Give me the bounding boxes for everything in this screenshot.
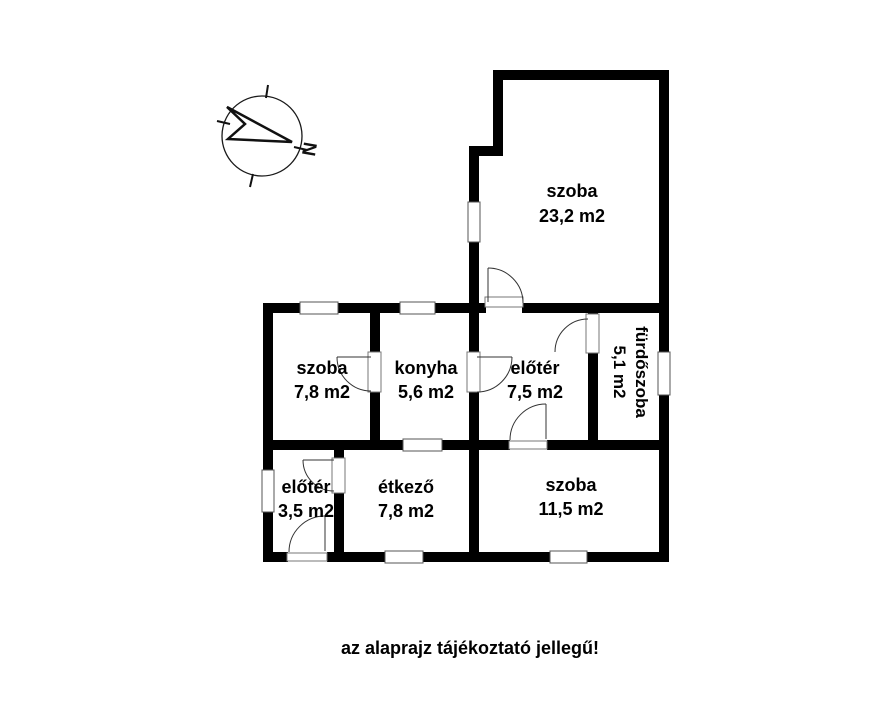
door-panel-eloter-etkezo bbox=[332, 458, 345, 493]
room-area-szoba-bottom: 11,5 m2 bbox=[538, 499, 603, 519]
window-etkezo-bottom bbox=[385, 551, 423, 563]
room-area-szoba-large: 23,2 m2 bbox=[539, 206, 605, 226]
room-name-szoba-bottom: szoba bbox=[545, 475, 597, 495]
door-panel-konyha-eloter bbox=[467, 352, 480, 392]
window-szoba-bottom bbox=[550, 551, 587, 563]
wall-outer-right bbox=[659, 70, 669, 562]
disclaimer-caption: az alaprajz tájékoztató jellegű! bbox=[341, 638, 599, 658]
room-area-szoba-small: 7,8 m2 bbox=[294, 382, 350, 402]
floor-plan-page: N szoba 23,2 m2 szoba 7,8 m2 konyha 5,6 … bbox=[0, 0, 887, 702]
room-area-konyha: 5,6 m2 bbox=[398, 382, 454, 402]
room-name-eloter-lower: előtér bbox=[281, 477, 330, 497]
door-panel-furdoszoba bbox=[586, 314, 599, 353]
door-arc-entrance bbox=[289, 516, 325, 552]
north-label: N bbox=[297, 140, 320, 157]
compass: N bbox=[217, 85, 320, 187]
room-area-eloter-lower: 3,5 m2 bbox=[278, 501, 334, 521]
window-bigroom-left bbox=[468, 202, 480, 242]
room-name-furdoszoba: fürdőszoba bbox=[632, 326, 651, 418]
room-area-furdoszoba: 5,1 m2 bbox=[610, 346, 629, 399]
window-konyha-top bbox=[400, 302, 435, 314]
door-arc-eloter-szoba bbox=[510, 404, 546, 440]
wall-bigroom-left-upper bbox=[493, 70, 503, 156]
room-name-szoba-small: szoba bbox=[296, 358, 348, 378]
window-szoba-small-top bbox=[300, 302, 338, 314]
room-name-konyha: konyha bbox=[394, 358, 458, 378]
room-name-etkezo: étkező bbox=[378, 477, 434, 497]
room-area-etkezo: 7,8 m2 bbox=[378, 501, 434, 521]
wall-etkezo-szoba bbox=[469, 440, 479, 562]
door-panel-eloter-szoba bbox=[509, 441, 547, 449]
wall-bigroom-top bbox=[493, 70, 669, 80]
wall-middle-bottom bbox=[263, 440, 669, 450]
door-panel-bigroom bbox=[485, 297, 523, 307]
door-panel-entrance bbox=[287, 553, 327, 561]
north-arrow-icon bbox=[227, 107, 292, 142]
room-name-szoba-large: szoba bbox=[546, 181, 598, 201]
window-furdoszoba-right bbox=[658, 352, 670, 395]
door-panel-szoba-konyha bbox=[368, 352, 381, 392]
compass-tick-bottom bbox=[250, 174, 253, 187]
door-arc-furdoszoba bbox=[555, 319, 588, 352]
room-area-eloter-upper: 7,5 m2 bbox=[507, 382, 563, 402]
wall-outer-left bbox=[263, 303, 273, 562]
room-name-eloter-upper: előtér bbox=[510, 358, 559, 378]
floor-plan-drawing: N szoba 23,2 m2 szoba 7,8 m2 konyha 5,6 … bbox=[0, 0, 887, 702]
window-eloter-lower-left bbox=[262, 470, 274, 512]
window-konyha-bottom bbox=[403, 439, 442, 451]
